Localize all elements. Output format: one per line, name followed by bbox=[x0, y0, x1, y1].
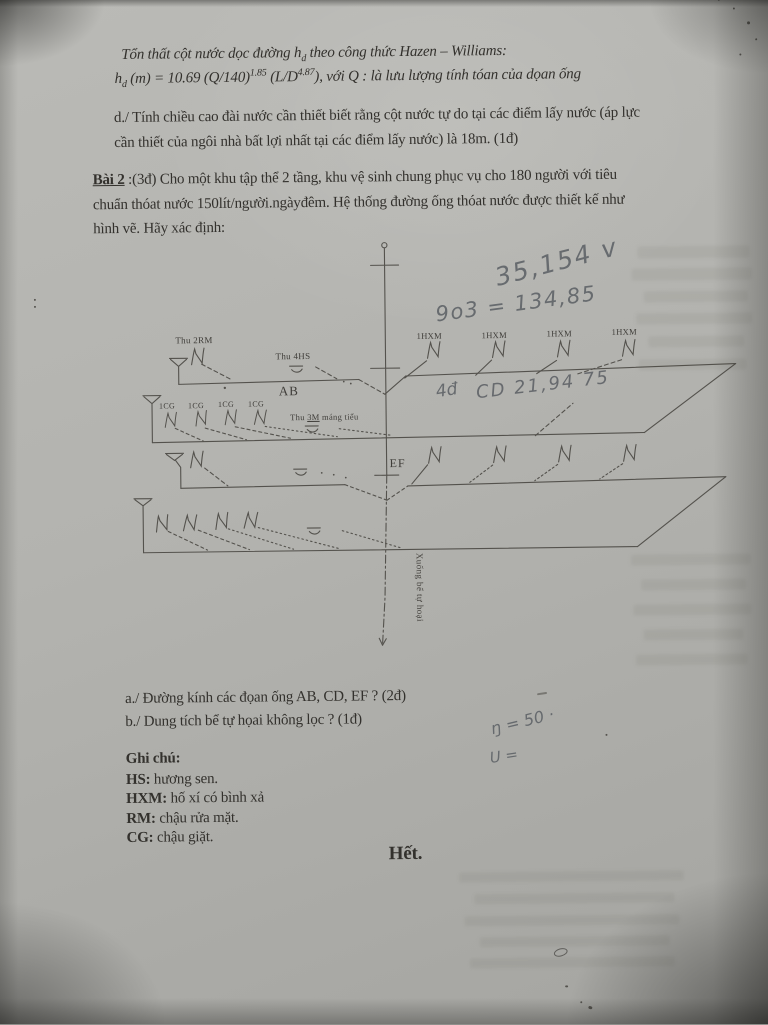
ghost-line bbox=[474, 892, 674, 904]
label-pipe-ab: AB bbox=[279, 383, 299, 399]
ghost-line bbox=[639, 358, 747, 370]
label-3m-underlined: 3M bbox=[307, 412, 320, 422]
label-cg-4: 1CG bbox=[248, 399, 264, 408]
legend-item-rm: RM: chậu rửa mặt. bbox=[126, 810, 238, 828]
label-thu-2rm: Thu 2RM bbox=[175, 335, 212, 345]
floor2-cg-branch bbox=[143, 391, 644, 443]
legend-text: chậu giặt. bbox=[153, 829, 213, 846]
legend-text: hương sen. bbox=[150, 771, 218, 788]
legend-key: HS: bbox=[126, 772, 151, 788]
legend-key: HXM: bbox=[126, 791, 167, 807]
legend-key: CG: bbox=[126, 830, 153, 846]
scanned-exam-page: Tổn thất cột nước dọc đường hd theo công… bbox=[0, 0, 768, 1024]
label-text: máng tiểu bbox=[320, 411, 359, 421]
stack-pipe bbox=[369, 242, 402, 645]
ghost-line bbox=[470, 956, 675, 968]
ghost-line bbox=[643, 628, 743, 640]
ghost-line bbox=[636, 312, 752, 324]
ghost-line bbox=[631, 553, 751, 565]
ghost-line bbox=[637, 245, 749, 258]
question-a: a./ Đường kính các đọan ống AB, CD, EF ?… bbox=[125, 688, 406, 708]
label-cg-2: 1CG bbox=[188, 401, 204, 410]
ghost-line bbox=[641, 578, 746, 590]
speck bbox=[755, 38, 757, 40]
legend-item-cg: CG: chậu giặt. bbox=[126, 829, 213, 847]
handwriting-note-3: 4đ bbox=[434, 379, 458, 402]
label-pipe-ef: EF bbox=[390, 456, 406, 471]
ghost-line bbox=[648, 335, 744, 347]
ghost-line bbox=[644, 290, 748, 302]
speck bbox=[34, 299, 36, 301]
speck bbox=[739, 53, 741, 55]
label-hxm-3: 1HXM bbox=[541, 328, 577, 338]
floor1-ef-right-branch bbox=[407, 444, 726, 549]
label-cg-1: 1CG bbox=[159, 401, 175, 410]
speck bbox=[605, 734, 607, 736]
label-hxm-2: 1HXM bbox=[476, 330, 512, 340]
speck bbox=[580, 1001, 582, 1003]
speck bbox=[747, 21, 750, 24]
page-content: Tổn thất cột nước dọc đường hd theo công… bbox=[0, 0, 768, 1025]
speck bbox=[565, 985, 568, 987]
legend-key: RM: bbox=[126, 811, 156, 827]
label-thu-3m: Thu 3M máng tiểu bbox=[290, 411, 358, 422]
legend-title: Ghi chú: bbox=[126, 750, 181, 768]
label-text: Thu bbox=[290, 412, 307, 422]
ghost-line bbox=[633, 603, 751, 615]
ghost-line bbox=[480, 935, 670, 947]
label-thu-4hs: Thu 4HS bbox=[275, 351, 310, 361]
ghost-line bbox=[636, 653, 748, 665]
legend-text: hố xí có bình xả bbox=[167, 790, 264, 807]
speck bbox=[733, 8, 735, 10]
label-stack-note: Xuống bể tự hoại bbox=[415, 553, 426, 622]
legend-item-hs: HS: hương sen. bbox=[126, 771, 218, 789]
legend-text: chậu rửa mặt. bbox=[156, 810, 239, 827]
legend-item-hxm: HXM: hố xí có bình xả bbox=[126, 790, 264, 808]
speck bbox=[34, 306, 36, 308]
floor1-ef-left-branch bbox=[165, 449, 408, 503]
footer-het: Hết. bbox=[389, 843, 423, 865]
question-b: b./ Dung tích bể tự họai không lọc ? (1đ… bbox=[125, 711, 362, 730]
label-hxm-1: 1HXM bbox=[411, 331, 447, 341]
ghost-line bbox=[632, 267, 752, 280]
label-cg-3: 1CG bbox=[218, 400, 234, 409]
label-hxm-4: 1HXM bbox=[606, 327, 642, 337]
